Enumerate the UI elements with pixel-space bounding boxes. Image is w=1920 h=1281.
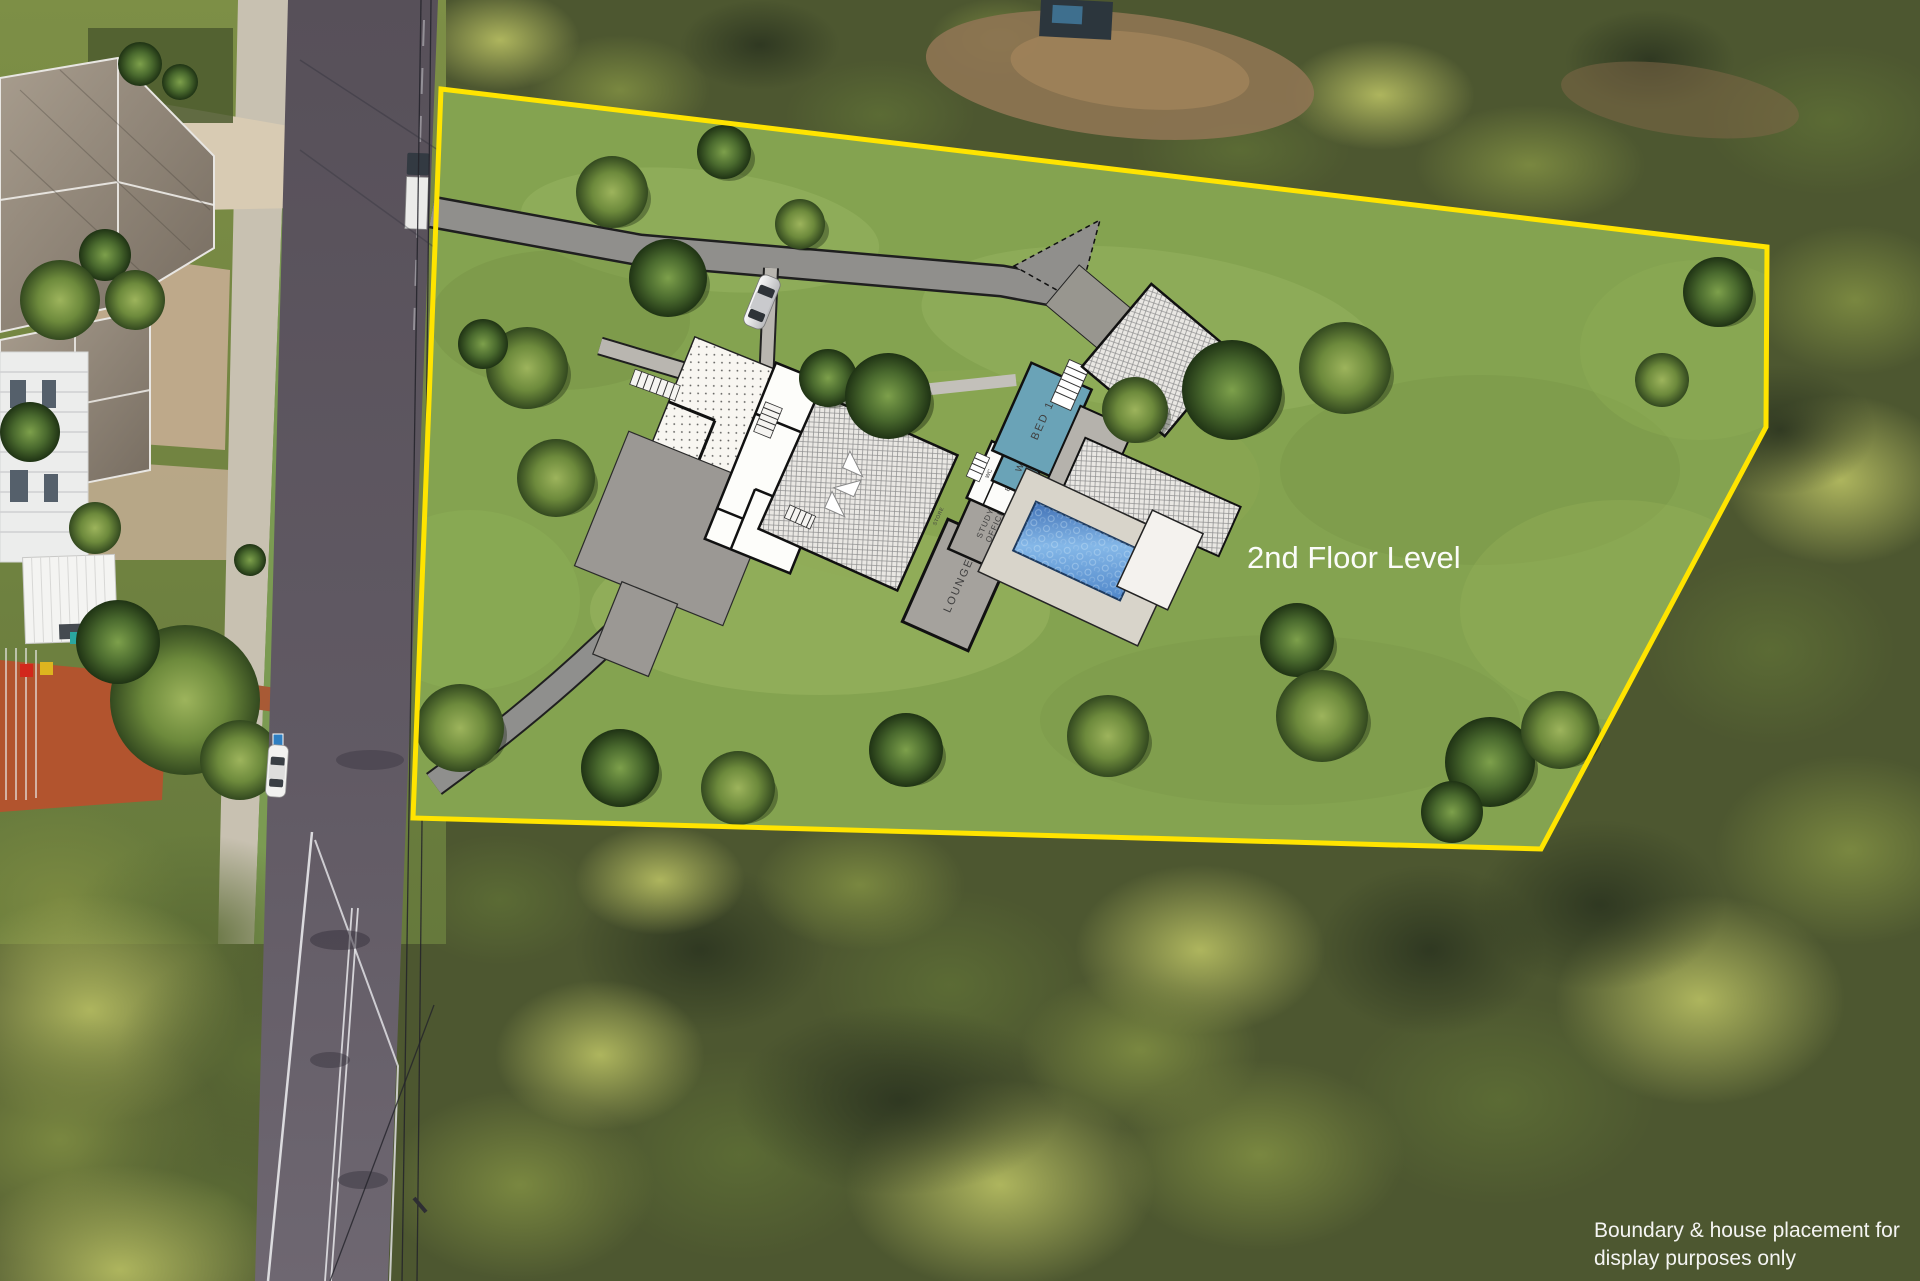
tree xyxy=(458,319,508,369)
disclaimer-line2: display purposes only xyxy=(1594,1247,1796,1270)
tree xyxy=(1635,353,1689,407)
backyard-structure xyxy=(1039,0,1113,40)
annotation-floor-level: 2nd Floor Level xyxy=(1247,540,1461,575)
parked-car-road xyxy=(265,744,289,797)
disclaimer-line1: Boundary & house placement for xyxy=(1594,1219,1900,1242)
aerial-photo: LOUNGE STORE STUDY/ OFFICE WC BATH WIR B… xyxy=(0,0,1920,1281)
truck xyxy=(405,153,430,230)
tree xyxy=(1421,781,1483,843)
aerial-site-photo: LOUNGE STORE STUDY/ OFFICE WC BATH WIR B… xyxy=(0,0,1920,1281)
